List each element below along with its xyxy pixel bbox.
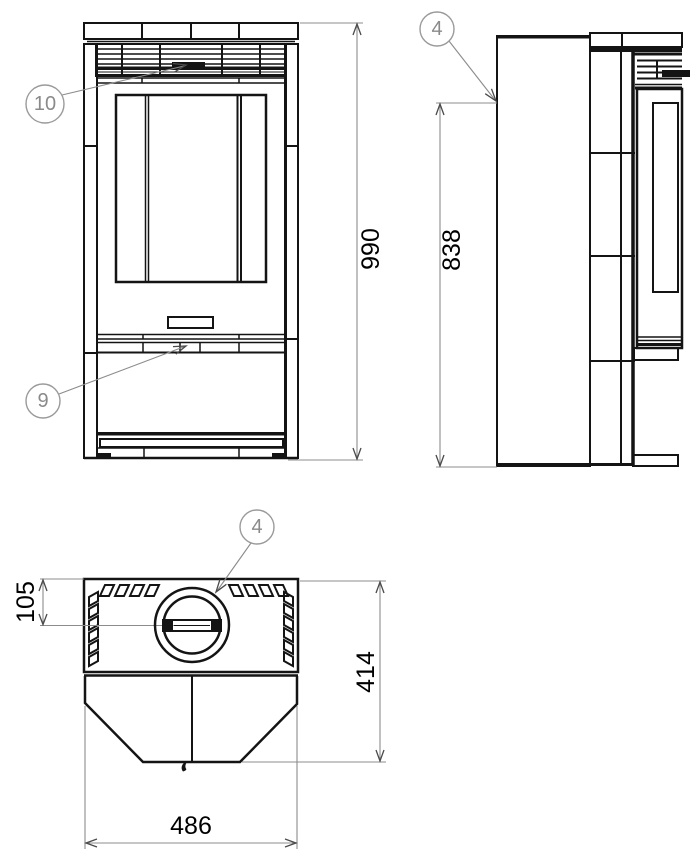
dimension-105: 105 xyxy=(12,579,84,626)
top-door-handle-mark xyxy=(182,762,187,772)
side-door-glass xyxy=(653,103,678,292)
technical-drawing: 990 10 9 xyxy=(0,0,700,859)
front-air-control xyxy=(168,317,213,328)
front-face-edges xyxy=(97,44,286,458)
dimension-990-lines xyxy=(288,23,363,460)
front-window-left-mullion xyxy=(146,95,149,282)
dimension-838: 838 xyxy=(436,103,497,467)
side-plinth xyxy=(633,455,678,466)
front-grille-slats xyxy=(96,49,286,64)
side-top-plate xyxy=(590,33,682,47)
dimension-105-label: 105 xyxy=(12,581,40,623)
front-right-foot xyxy=(272,453,285,458)
top-vent-slots-right-row xyxy=(229,585,288,596)
side-back-top-edge xyxy=(497,35,590,39)
side-top-plate-band xyxy=(590,47,682,52)
balloon-10-label: 10 xyxy=(34,93,56,115)
balloon-4-top-label: 4 xyxy=(251,516,262,538)
dimension-486-label: 486 xyxy=(170,812,212,840)
side-tile-joints xyxy=(590,153,635,361)
balloon-4-side-leader xyxy=(449,41,495,100)
front-damper-handle xyxy=(172,62,205,68)
front-base-band xyxy=(97,448,286,458)
dimension-414-label: 414 xyxy=(352,651,380,693)
dimension-990-label: 990 xyxy=(357,228,385,270)
balloon-4-side-label: 4 xyxy=(431,18,442,40)
front-base-rail xyxy=(100,439,283,447)
front-lower-panel-edge xyxy=(97,432,286,436)
top-vent-slots-left-row xyxy=(100,585,159,596)
side-door-bottom-lines xyxy=(637,337,682,341)
front-top-plate-seams xyxy=(142,23,239,39)
front-grille-thin-lines xyxy=(96,72,286,75)
side-damper-rod xyxy=(662,70,690,77)
top-vent-slots-right-column xyxy=(284,592,293,666)
top-view xyxy=(40,579,298,772)
front-left-foot xyxy=(98,453,111,458)
front-door-window xyxy=(116,95,266,282)
drawing-canvas: 990 10 9 xyxy=(0,0,700,859)
balloon-4-side: 4 xyxy=(420,12,496,101)
balloon-9: 9 xyxy=(26,346,186,418)
top-damper-end-left xyxy=(163,620,173,631)
dimension-838-label: 838 xyxy=(438,229,466,271)
front-mid-band xyxy=(97,343,286,353)
dimension-838-lines xyxy=(436,103,497,467)
top-damper-end-right xyxy=(211,620,221,631)
top-vent-slots-left-column xyxy=(89,592,98,666)
side-back-panel xyxy=(497,36,590,466)
front-window-right-mullion xyxy=(238,95,242,282)
front-view xyxy=(84,23,298,458)
side-door xyxy=(637,89,682,348)
side-lower-trim xyxy=(634,348,678,360)
balloon-9-label: 9 xyxy=(37,390,48,412)
front-mid-rail xyxy=(97,335,286,340)
front-left-tile-column xyxy=(84,44,97,458)
side-view xyxy=(497,33,690,466)
dimension-105-lines xyxy=(40,579,84,626)
balloon-4-top-leader xyxy=(217,543,251,591)
dimension-990: 990 xyxy=(288,23,385,460)
